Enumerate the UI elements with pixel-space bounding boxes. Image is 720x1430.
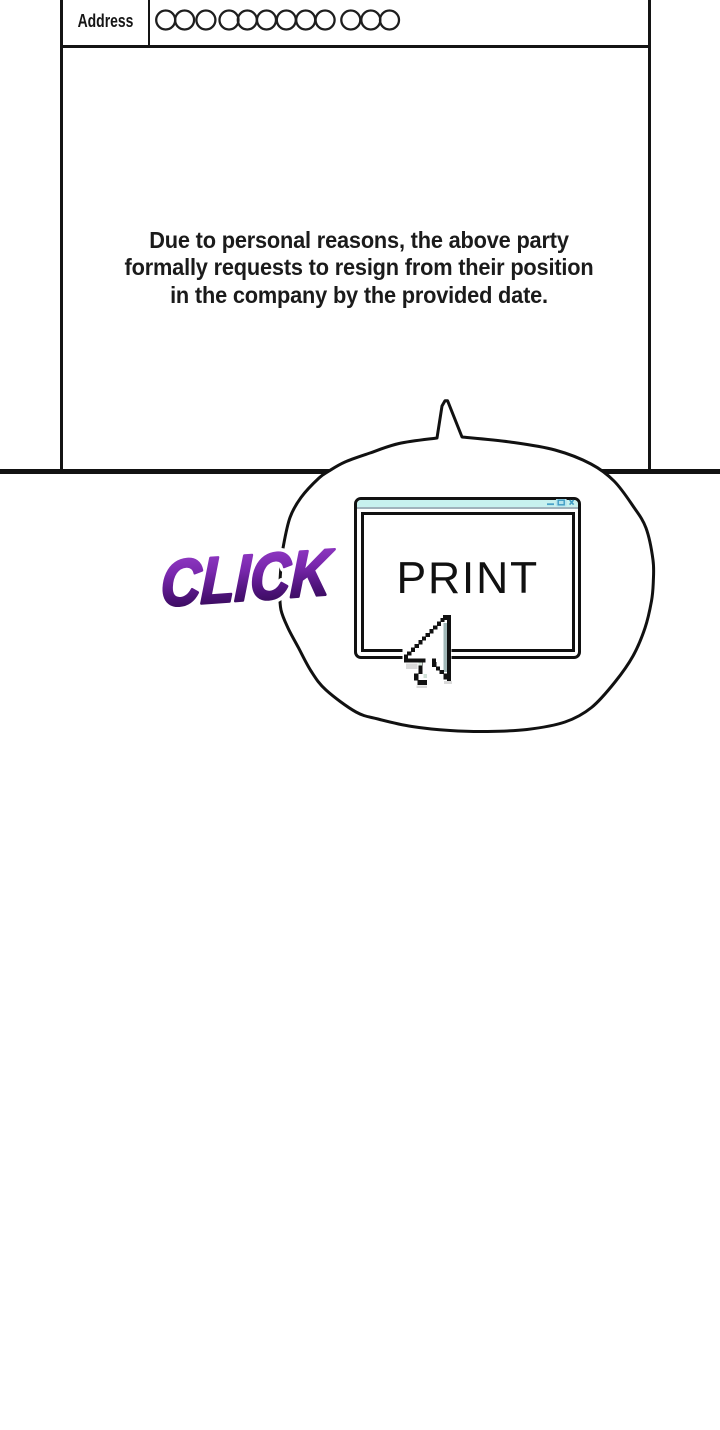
- svg-text:CLICK: CLICK: [160, 535, 335, 620]
